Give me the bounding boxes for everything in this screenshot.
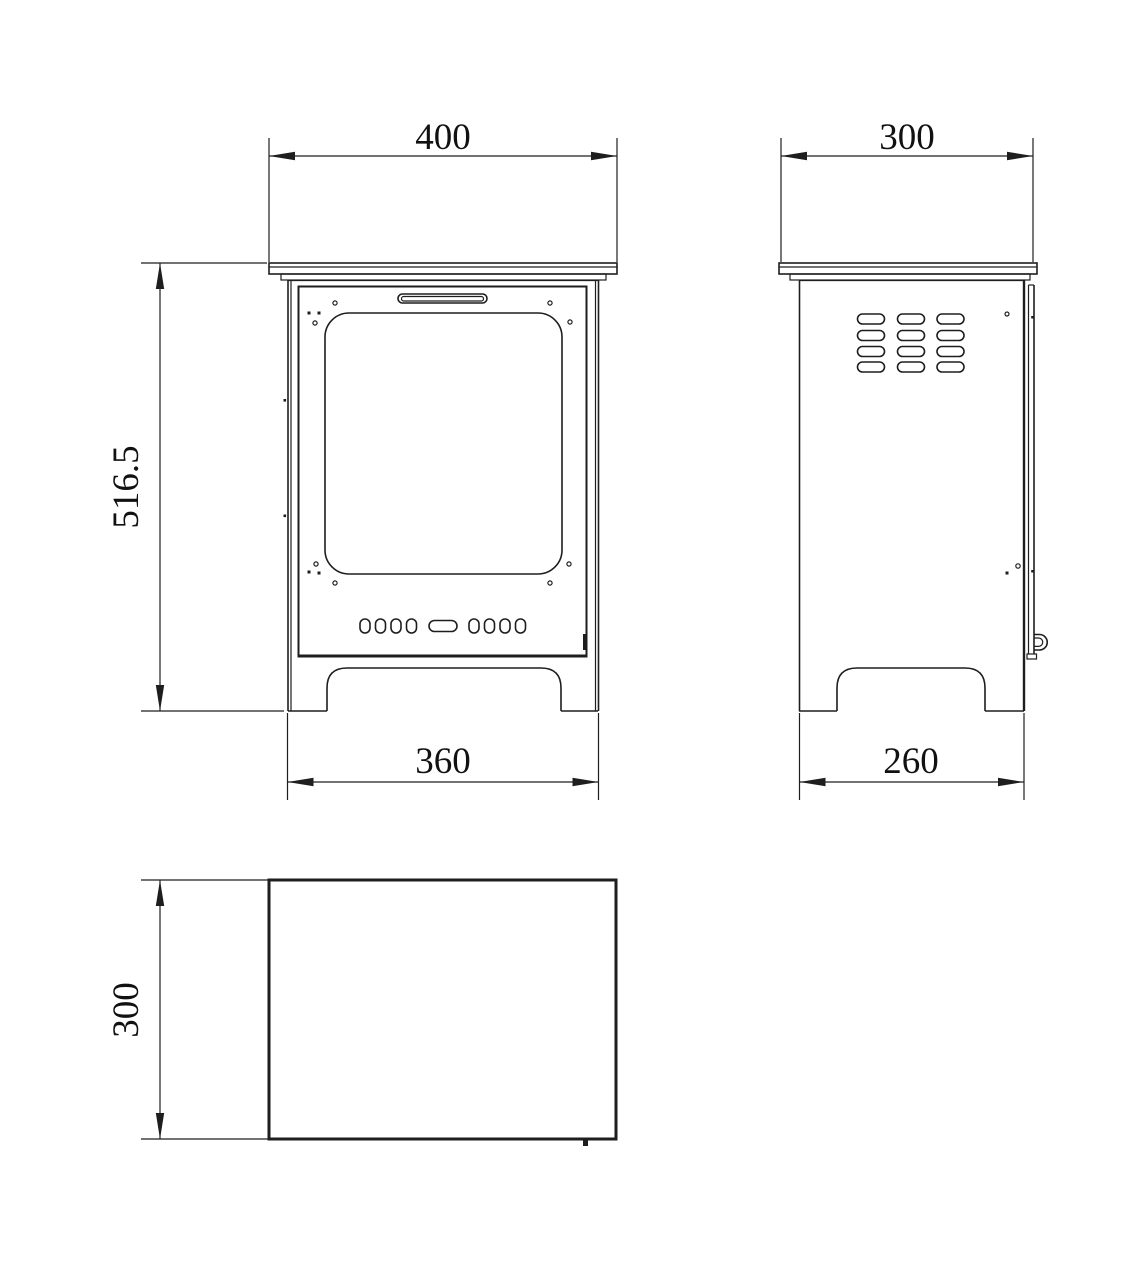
dimension-arrow xyxy=(156,685,164,711)
dimension-arrow xyxy=(591,152,617,160)
screw-mark xyxy=(1006,572,1009,575)
front-body xyxy=(284,280,599,711)
vent-slot xyxy=(376,619,386,633)
front-top-width-dimension: 400 xyxy=(269,117,617,262)
vent-slot xyxy=(500,619,510,633)
vent-slot xyxy=(858,314,885,324)
front-view: 400 516.5 xyxy=(106,117,617,800)
stove-dimension-drawing: 400 516.5 xyxy=(0,0,1139,1268)
center-vent-slot xyxy=(429,621,457,632)
knob-outline xyxy=(1034,635,1047,651)
plan-tab xyxy=(583,1139,588,1146)
screw-hole xyxy=(314,562,318,566)
door-handle-slot xyxy=(398,294,487,303)
dimension-arrow xyxy=(269,152,295,160)
vent-slot xyxy=(485,619,495,633)
side-legs xyxy=(799,668,1024,711)
technical-drawing-sheet: 400 516.5 xyxy=(0,0,1139,1268)
front-door-panel xyxy=(299,287,588,657)
vent-slot xyxy=(360,619,370,633)
plan-outline xyxy=(269,880,616,1139)
dimension-arrow xyxy=(156,880,164,906)
door-outline xyxy=(299,287,587,657)
screw-hole xyxy=(1005,312,1009,316)
side-top-depth-value: 300 xyxy=(879,117,935,158)
front-height-value: 516.5 xyxy=(106,445,147,528)
dimension-arrow xyxy=(998,778,1024,786)
front-base-width-value: 360 xyxy=(415,741,471,782)
screw-hole xyxy=(548,301,552,305)
plan-view: 300 xyxy=(106,880,616,1146)
side-base-depth-value: 260 xyxy=(883,741,939,782)
top-plate-lip xyxy=(281,274,606,280)
door-handle-slot-inner xyxy=(402,297,484,302)
hinge-mark xyxy=(284,515,287,518)
front-height-dimension: 516.5 xyxy=(106,263,284,711)
top-plate-outline xyxy=(269,263,617,274)
screw-hole xyxy=(1016,564,1020,568)
door-strip-foot xyxy=(1027,654,1037,659)
vent-slot xyxy=(898,347,925,357)
vent-slot xyxy=(516,619,526,633)
front-legs xyxy=(288,668,598,711)
vent-slot xyxy=(469,619,479,633)
side-door-strip xyxy=(1027,285,1037,659)
leg-arch-cutout xyxy=(837,668,985,711)
side-top-plate xyxy=(779,263,1037,280)
front-base-width-dimension: 360 xyxy=(288,713,599,800)
vent-slot xyxy=(937,314,964,324)
plan-depth-dimension: 300 xyxy=(106,880,269,1139)
screw-hole xyxy=(313,321,317,325)
screw-mark xyxy=(318,572,321,575)
side-top-depth-dimension: 300 xyxy=(781,117,1033,262)
dimension-arrow xyxy=(573,778,599,786)
screw-hole xyxy=(333,301,337,305)
strip-mark xyxy=(1031,316,1034,319)
vent-slot xyxy=(898,314,925,324)
side-door-knob xyxy=(1034,635,1047,651)
door-glass-window xyxy=(325,313,562,574)
vent-slot xyxy=(898,362,925,372)
vent-slot xyxy=(937,347,964,357)
vent-slot xyxy=(937,362,964,372)
dimension-arrow xyxy=(156,1113,164,1139)
screw-holes xyxy=(308,301,573,585)
side-base-depth-dimension: 260 xyxy=(800,713,1025,800)
dimension-arrow xyxy=(156,263,164,289)
vent-slot xyxy=(858,331,885,341)
dimension-arrow xyxy=(781,152,807,160)
front-vent-row xyxy=(360,619,526,633)
dimension-arrow xyxy=(800,778,826,786)
vent-slot xyxy=(858,347,885,357)
vent-slot xyxy=(407,619,417,633)
side-view: 300 xyxy=(779,117,1047,800)
screw-hole xyxy=(568,320,572,324)
side-body xyxy=(800,280,1048,711)
screw-mark xyxy=(318,312,321,315)
front-top-width-value: 400 xyxy=(415,117,471,158)
dimension-arrow xyxy=(1007,152,1033,160)
screw-mark xyxy=(308,312,311,315)
vent-slot xyxy=(858,362,885,372)
hinge-mark xyxy=(284,399,287,402)
knob-inner-line xyxy=(1034,638,1043,646)
screw-hole xyxy=(333,581,337,585)
dimension-arrow xyxy=(288,778,314,786)
screw-hole xyxy=(567,562,571,566)
vent-slot xyxy=(391,619,401,633)
screw-mark xyxy=(308,571,311,574)
top-plate-lip xyxy=(790,274,1030,280)
top-plate-outline xyxy=(779,263,1037,274)
strip-mark xyxy=(1031,570,1034,573)
screw-hole xyxy=(548,581,552,585)
door-latch xyxy=(583,634,588,650)
vent-slot xyxy=(937,331,964,341)
vent-slot xyxy=(898,331,925,341)
front-top-plate xyxy=(269,263,617,280)
side-vent-grid xyxy=(858,314,965,372)
plan-depth-value: 300 xyxy=(106,982,147,1038)
leg-arch-cutout xyxy=(327,668,561,711)
